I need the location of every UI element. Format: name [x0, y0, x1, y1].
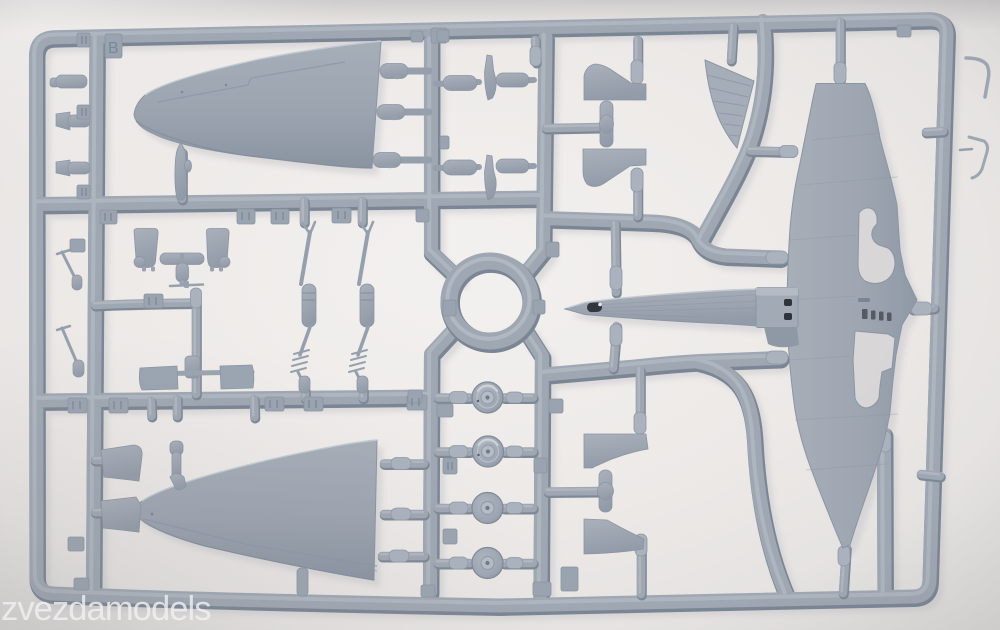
svg-text:zvezdamodels: zvezdamodels [1, 590, 212, 628]
